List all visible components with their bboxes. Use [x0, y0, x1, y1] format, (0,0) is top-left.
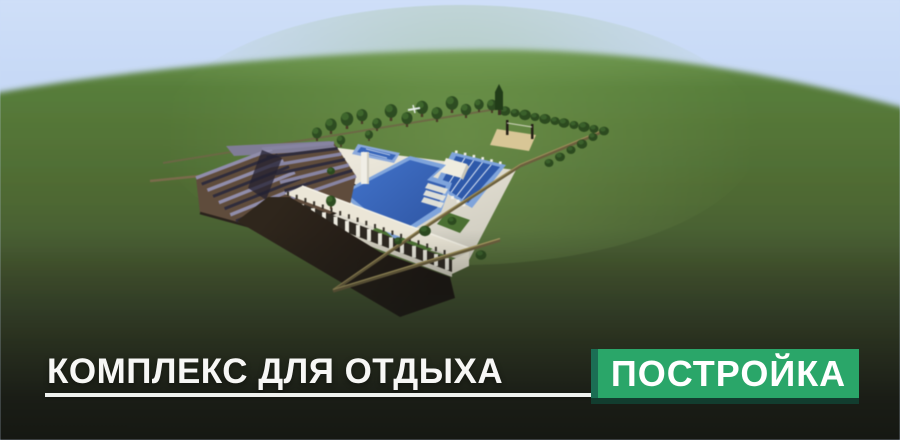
category-badge: ПОСТРОЙКА [598, 349, 859, 398]
text-overlay: КОМПЛЕКС ДЛЯ ОТДЫХА ПОСТРОЙКА [0, 0, 900, 440]
title-text: КОМПЛЕКС ДЛЯ ОТДЫХА [47, 352, 503, 392]
badge-left-edge [591, 349, 598, 398]
badge-label: ПОСТРОЙКА [611, 353, 846, 395]
badge-bottom-edge [591, 398, 859, 404]
title-underline [45, 393, 591, 397]
thumbnail-frame: КОМПЛЕКС ДЛЯ ОТДЫХА ПОСТРОЙКА [0, 0, 900, 440]
